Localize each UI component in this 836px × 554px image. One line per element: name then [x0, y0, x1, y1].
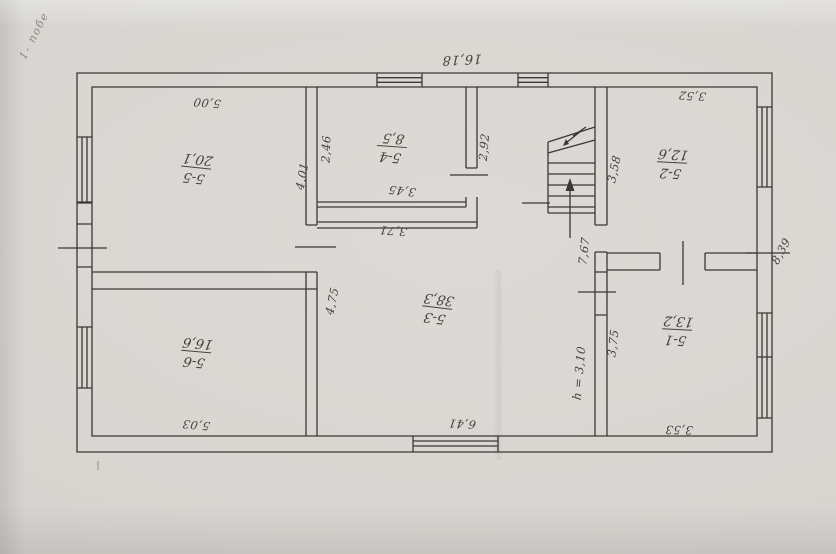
room-area: 13,2: [662, 312, 695, 330]
room-area: 12,6: [657, 145, 690, 163]
dim-room54-door: 2,92: [476, 132, 492, 162]
dim-room53-width: 6,41: [447, 416, 477, 431]
room-area: 38,3: [422, 289, 456, 309]
dim-wall-371: 3,71: [378, 223, 408, 239]
room-id: 5-6: [178, 350, 211, 370]
dimension-ticks: [58, 175, 790, 292]
room-id: 5-2: [654, 162, 687, 181]
room-area: 16,6: [181, 334, 214, 353]
floor-plan-drawing: [0, 0, 836, 554]
room-label-5-4: 5-4 8,5: [374, 129, 410, 165]
room-id: 5-1: [659, 329, 692, 348]
windows: [77, 73, 772, 452]
room-id: 5-4: [374, 145, 407, 164]
dim-room54-width: 3,45: [387, 183, 417, 200]
dim-top-total: 16,18: [442, 50, 482, 67]
dim-room51-width: 3,53: [664, 423, 693, 437]
dim-room55-width: 5,00: [192, 95, 222, 111]
dim-wall-246: 2,46: [319, 134, 334, 163]
interior-walls: [77, 87, 757, 436]
staircase: [548, 127, 595, 213]
outer-walls: [77, 73, 772, 452]
room-id: 5-5: [177, 166, 211, 186]
scanned-floor-plan-sheet: 1- побе 5-5 20,1 5-4 8,5 5-2 12,6 5-6 16…: [0, 0, 836, 554]
dim-room52-width: 3,52: [677, 88, 707, 103]
dim-room56-width: 5,03: [181, 417, 211, 433]
room-label-5-1: 5-1 13,2: [659, 312, 694, 347]
room-area: 20,1: [181, 150, 214, 169]
room-label-5-2: 5-2 12,6: [654, 145, 689, 180]
room-area: 8,5: [377, 129, 410, 147]
